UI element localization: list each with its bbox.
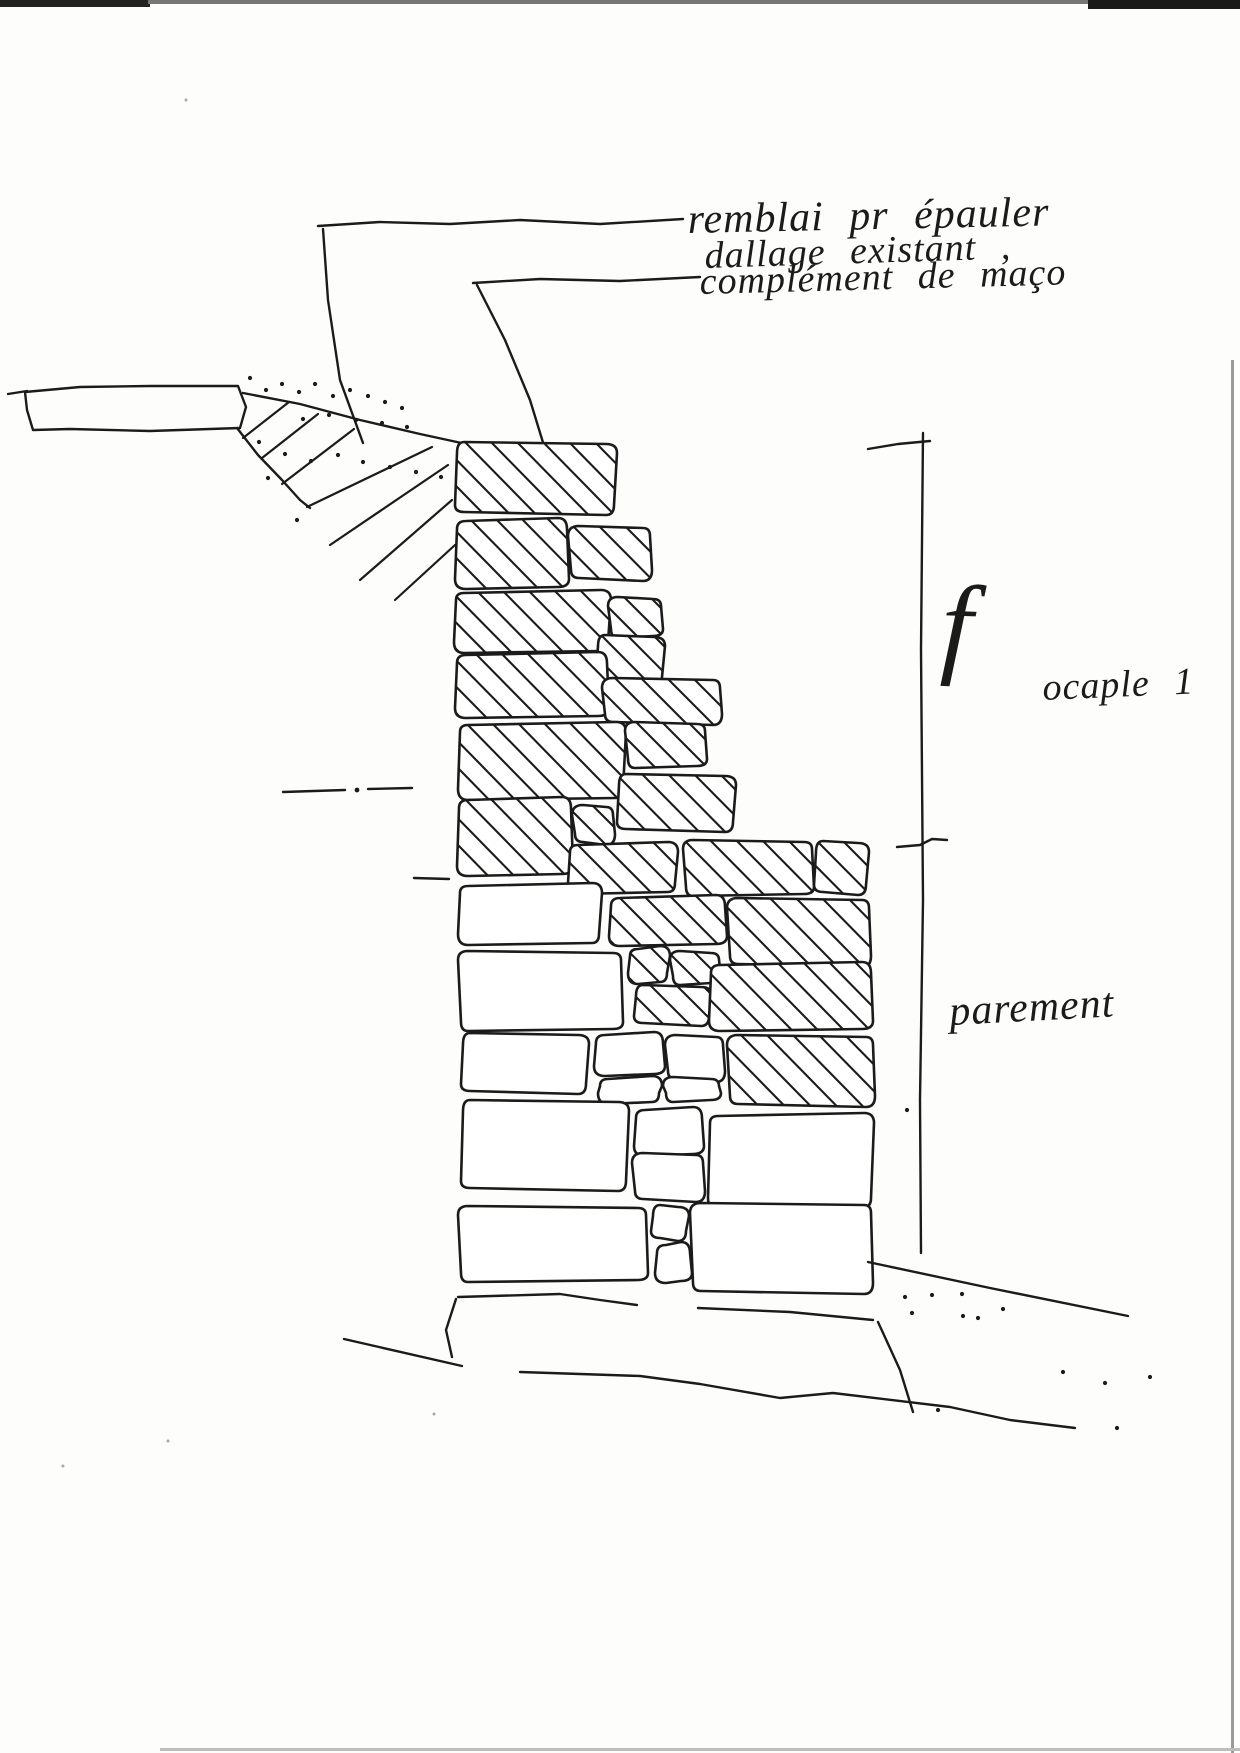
slope-stipple-dot [264,388,268,392]
wall-block-hatched [572,805,615,845]
ground-stipple-dot [960,1292,964,1296]
wall-block-hatched [814,841,869,895]
slope-stipple-dot [439,475,443,479]
wall-block-plain [598,1076,662,1104]
slope-stipple-dot [380,421,384,425]
ground-stipple-dot [903,1295,907,1299]
slope-stipple-dot [366,394,370,398]
slope-stipple-dot [283,452,287,456]
wall-block-plain [663,1077,721,1102]
slope-stipple-dot [313,382,317,386]
label-parement: parement [945,980,1116,1035]
scan-speck [433,1413,436,1416]
wall-block-hatched [455,518,569,589]
ground-stipple-dot [905,1108,909,1112]
label-complement: complément de maço [699,251,1067,303]
dash-dot-level-line [283,790,345,792]
ground-stipple-dot [936,1408,940,1412]
wall-block-hatched [458,722,626,800]
scan-edge-artifact [160,1748,1240,1751]
dash-dot-level-line [368,788,412,789]
wall-block-plain [458,883,602,945]
rubble-hatch [243,402,455,600]
dash-dot-dot [355,788,360,793]
slope-lower-boundary [237,428,310,508]
slope-stipple-dot [301,417,305,421]
slope-stipple-dot [383,400,387,404]
ground-line [446,1299,456,1357]
slope-stipple-dot [348,388,352,392]
scan-edge-artifact [1088,0,1240,9]
ground-line [520,1372,1075,1428]
ground-line [458,1294,637,1305]
wall-block-plain [632,1153,705,1202]
ground-stipple-dot [1148,1375,1152,1379]
ground-stipple-dot [1001,1307,1005,1311]
ground-stipple-dot [1061,1370,1065,1374]
ground-stipple-dot [1103,1381,1107,1385]
label-ocaple: ocaple 1 [1042,660,1195,709]
label-leader-line [318,219,683,226]
slope-stipple-dot [400,406,404,410]
slope-stipple-dot [280,382,284,386]
slope-stipple-dot [266,476,270,480]
wall-block-hatched [683,840,814,896]
wall-block-hatched [455,442,617,515]
slope-stipple-dot [414,470,418,474]
dash-dot-level-line [414,878,449,879]
wall-block-plain [665,1035,725,1082]
slope-stipple-dot [295,518,299,522]
slope-stipple-dot [354,418,358,422]
label-leader-line [473,277,700,283]
ground-stipple-dot [930,1293,934,1297]
label-leader-line [477,285,545,449]
wall-block-plain [594,1032,665,1076]
scan-edge-artifact [148,0,1093,4]
wall-block-plain [461,1033,589,1094]
ground-line [868,1262,1128,1316]
slope-stipple-dot [327,413,331,417]
wall-block-plain [690,1203,873,1294]
scan-speck [62,1465,65,1468]
ground-line [698,1308,873,1320]
wall-block-plain [708,1113,874,1209]
wall-block-plain [461,1100,629,1191]
wall-block-plain [655,1242,692,1283]
ground-stipple-dot [910,1311,914,1315]
slope-stipple-dot [388,465,392,469]
wall-block-hatched [602,678,722,725]
wall-block-plain [458,1206,648,1282]
wall-block-plain [458,951,623,1031]
scan-speck [167,1440,170,1443]
slope-stipple-dot [361,460,365,464]
ground-stipple-dot [961,1314,965,1318]
ground-slab [25,386,246,431]
scan-speck [185,99,188,102]
sketch-canvas: remblai pr épauler dallage existant , co… [0,0,1240,1753]
ground-stipple-dot [1115,1426,1119,1430]
dimension-tick-top [868,441,930,449]
wall-block-hatched [628,946,670,984]
scanned-sketch-page: remblai pr épauler dallage existant , co… [0,0,1240,1753]
slope-stipple-dot [309,459,313,463]
label-f-mark: f [939,563,988,688]
slope-stipple-dot [248,376,252,380]
ground-line [344,1339,462,1366]
wall-block-plain [651,1205,689,1241]
scan-edge-artifact [1231,360,1234,1753]
wall-block-plain [634,1107,704,1156]
ground-stipple-dot [976,1316,980,1320]
slope-stipple-dot [257,440,261,444]
slope-stipple-dot [297,390,301,394]
slope-stipple-dot [331,394,335,398]
slope-stipple-dot [405,425,409,429]
slope-stipple-dot [336,453,340,457]
scan-edge-artifact [0,0,150,7]
